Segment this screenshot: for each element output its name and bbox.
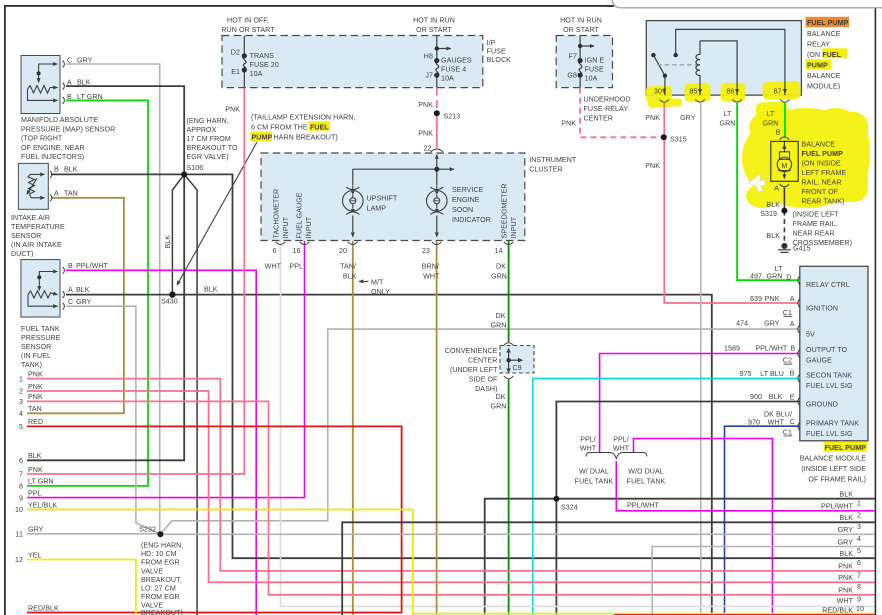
svg-text:S232: S232 — [139, 526, 156, 534]
svg-text:6 CM FROM THE: 6 CM FROM THE — [251, 123, 308, 131]
svg-text:BALANCE MODULE: BALANCE MODULE — [800, 454, 866, 462]
svg-text:D2: D2 — [231, 49, 240, 57]
svg-text:YEL/BLK: YEL/BLK — [28, 501, 57, 509]
svg-text:TEMPERATURE: TEMPERATURE — [11, 223, 65, 231]
svg-text:PRESSURE: PRESSURE — [21, 334, 61, 342]
svg-text:HOT IN RUN: HOT IN RUN — [413, 17, 455, 25]
svg-text:SENSOR: SENSOR — [11, 232, 41, 240]
svg-text:SOON: SOON — [452, 206, 473, 214]
svg-text:A: A — [774, 185, 779, 193]
svg-text:BLK: BLK — [343, 273, 357, 281]
svg-text:RAIL, NEAR: RAIL, NEAR — [802, 179, 842, 187]
svg-text:HARN BREAKOUT): HARN BREAKOUT) — [274, 133, 338, 141]
svg-text:FROM EGR: FROM EGR — [141, 593, 180, 601]
svg-text:B: B — [54, 166, 59, 174]
svg-text:RED: RED — [28, 418, 43, 426]
svg-text:22: 22 — [423, 145, 431, 153]
svg-text:RUN OR START: RUN OR START — [221, 26, 275, 34]
svg-text:LT GRN: LT GRN — [77, 93, 103, 101]
svg-text:PPL/WHT: PPL/WHT — [821, 503, 854, 511]
svg-text:S315: S315 — [670, 136, 687, 144]
svg-text:BALANCE: BALANCE — [807, 72, 841, 80]
svg-text:(INSIDE LEFT SIDE: (INSIDE LEFT SIDE — [801, 465, 866, 473]
svg-text:474: 474 — [736, 320, 748, 328]
svg-text:I/P: I/P — [487, 39, 496, 47]
svg-text:OR START: OR START — [416, 26, 452, 34]
svg-text:GRY: GRY — [77, 57, 93, 65]
svg-text:GROUND: GROUND — [806, 401, 838, 409]
svg-text:3: 3 — [19, 398, 23, 406]
svg-text:CONVENIENCE: CONVENIENCE — [445, 347, 498, 355]
svg-text:W/ DUAL: W/ DUAL — [579, 468, 609, 476]
svg-text:PNK: PNK — [28, 383, 43, 391]
svg-text:BLK: BLK — [164, 235, 172, 249]
svg-text:4: 4 — [857, 535, 861, 543]
svg-text:PNK: PNK — [645, 162, 660, 170]
svg-text:GRY: GRY — [28, 526, 44, 534]
svg-text:RELAY: RELAY — [807, 41, 830, 49]
svg-text:PUMP: PUMP — [252, 133, 273, 141]
svg-text:639: 639 — [750, 295, 762, 303]
svg-text:LT: LT — [767, 110, 775, 118]
svg-text:C1: C1 — [783, 309, 792, 317]
svg-text:PRIMARY TANK: PRIMARY TANK — [806, 420, 859, 428]
svg-text:IGNITION: IGNITION — [806, 305, 838, 313]
svg-text:LT BLU: LT BLU — [760, 370, 784, 378]
svg-text:WHT: WHT — [580, 445, 597, 453]
svg-text:FUSE-RELAY: FUSE-RELAY — [584, 105, 629, 113]
svg-text:PPL/: PPL/ — [613, 435, 629, 443]
svg-text:FUSE 20: FUSE 20 — [250, 61, 279, 69]
svg-text:BLK: BLK — [64, 166, 78, 174]
svg-text:HOT IN RUN: HOT IN RUN — [560, 17, 602, 25]
svg-text:S430: S430 — [161, 298, 178, 306]
svg-text:INDICATOR: INDICATOR — [452, 216, 491, 224]
svg-text:G8: G8 — [567, 72, 577, 80]
svg-text:H8: H8 — [424, 53, 433, 61]
svg-text:A: A — [67, 79, 72, 87]
svg-text:J7: J7 — [425, 72, 433, 80]
svg-text:8: 8 — [857, 583, 861, 591]
svg-text:BALANCE: BALANCE — [807, 30, 841, 38]
svg-text:GRN: GRN — [720, 120, 736, 128]
svg-text:PNK: PNK — [28, 370, 43, 378]
svg-text:TAN: TAN — [28, 405, 42, 413]
svg-text:FRAME RAIL,: FRAME RAIL, — [793, 220, 838, 228]
svg-text:BLK: BLK — [839, 550, 853, 558]
svg-text:6: 6 — [19, 457, 23, 465]
svg-text:SIDE OF: SIDE OF — [469, 376, 498, 384]
svg-text:OR START: OR START — [563, 26, 599, 34]
svg-text:TAN/: TAN/ — [340, 263, 356, 271]
svg-text:FUEL INJECTORS): FUEL INJECTORS) — [21, 153, 84, 161]
svg-text:BALANCE: BALANCE — [802, 141, 836, 149]
svg-text:YEL: YEL — [28, 551, 42, 559]
svg-text:BREAKOUT): BREAKOUT) — [141, 609, 183, 615]
svg-text:DASH): DASH) — [475, 385, 497, 393]
svg-text:8: 8 — [19, 483, 23, 491]
svg-text:PNK: PNK — [28, 466, 43, 474]
svg-text:REAR TANK): REAR TANK) — [802, 198, 845, 206]
svg-text:CLUSTER: CLUSTER — [529, 166, 563, 174]
svg-text:MODULE): MODULE) — [807, 83, 840, 91]
svg-text:(TAILLAMP EXTENSION HARN,: (TAILLAMP EXTENSION HARN, — [251, 114, 356, 122]
svg-text:TANK): TANK) — [21, 361, 42, 369]
svg-text:M/T: M/T — [371, 279, 384, 287]
svg-text:OF ENGINE, NEAR: OF ENGINE, NEAR — [21, 144, 85, 152]
svg-text:LAMP: LAMP — [367, 205, 387, 213]
svg-text:RELAY CTRL: RELAY CTRL — [806, 281, 850, 289]
svg-text:PNK: PNK — [418, 130, 433, 138]
svg-text:23: 23 — [422, 247, 430, 255]
svg-text:PNK: PNK — [838, 563, 853, 571]
svg-text:GRY: GRY — [838, 538, 854, 546]
svg-text:BREAKOUT TO: BREAKOUT TO — [187, 144, 239, 152]
svg-text:GRN: GRN — [767, 272, 783, 280]
svg-text:PPL/WHT: PPL/WHT — [627, 502, 660, 510]
svg-text:B: B — [67, 93, 72, 101]
svg-text:FUEL PUMP: FUEL PUMP — [825, 444, 867, 452]
svg-text:10A: 10A — [250, 70, 263, 78]
svg-text:FUSE: FUSE — [487, 48, 506, 56]
svg-text:D: D — [786, 274, 791, 282]
svg-text:BLK: BLK — [76, 286, 90, 294]
svg-text:(TOP RIGHT: (TOP RIGHT — [21, 135, 63, 143]
svg-text:S213: S213 — [444, 113, 461, 121]
svg-text:86: 86 — [726, 88, 734, 96]
svg-text:PPL: PPL — [28, 489, 42, 497]
svg-text:497: 497 — [750, 272, 762, 280]
svg-text:C: C — [67, 57, 72, 65]
svg-text:DK BLU/: DK BLU/ — [764, 411, 792, 419]
svg-text:C9: C9 — [513, 364, 522, 372]
svg-text:UPSHIFT: UPSHIFT — [367, 195, 398, 203]
svg-text:BLK: BLK — [839, 491, 853, 499]
svg-text:S324: S324 — [561, 504, 578, 512]
svg-text:(ENG HARN,: (ENG HARN, — [187, 117, 229, 125]
svg-text:PNK: PNK — [225, 106, 240, 114]
svg-text:BREAKOUT,: BREAKOUT, — [141, 576, 182, 584]
svg-text:5: 5 — [857, 547, 861, 555]
svg-text:INPUT: INPUT — [305, 216, 313, 238]
svg-text:MANIFOLD ABSOLUTE: MANIFOLD ABSOLUTE — [21, 116, 98, 124]
svg-text:BLK: BLK — [766, 201, 780, 209]
svg-text:PNK: PNK — [838, 587, 853, 595]
svg-text:BLK: BLK — [766, 232, 780, 240]
svg-text:C: C — [68, 298, 73, 306]
svg-text:14: 14 — [494, 247, 502, 255]
svg-text:12: 12 — [15, 556, 23, 564]
svg-text:PRESSURE (MAP) SENSOR: PRESSURE (MAP) SENSOR — [21, 125, 115, 133]
svg-text:DK: DK — [496, 263, 506, 271]
svg-text:5V: 5V — [806, 331, 815, 339]
svg-text:SECON TANK: SECON TANK — [806, 372, 852, 380]
svg-text:FUEL LVL SIG: FUEL LVL SIG — [806, 430, 853, 438]
svg-text:PUMP: PUMP — [807, 62, 828, 70]
svg-text:BLK: BLK — [839, 514, 853, 522]
svg-text:C2: C2 — [783, 357, 792, 365]
svg-text:GRN: GRN — [491, 403, 507, 411]
svg-text:B: B — [776, 129, 781, 137]
svg-text:10: 10 — [15, 506, 23, 514]
svg-text:HOT IN OFF,: HOT IN OFF, — [227, 17, 269, 25]
svg-text:11: 11 — [16, 531, 23, 539]
svg-text:BLOCK: BLOCK — [487, 56, 512, 64]
svg-text:GRN: GRN — [763, 120, 779, 128]
svg-text:FUEL: FUEL — [310, 123, 329, 131]
svg-text:B: B — [790, 344, 795, 352]
svg-text:HD: 10 CM: HD: 10 CM — [141, 550, 177, 558]
svg-text:9: 9 — [857, 596, 861, 604]
svg-text:CENTER: CENTER — [584, 115, 614, 123]
svg-text:C1: C1 — [783, 428, 792, 436]
svg-text:SENSOR: SENSOR — [21, 343, 51, 351]
svg-text:PNK: PNK — [838, 574, 853, 582]
svg-text:5: 5 — [19, 423, 23, 431]
svg-text:FUEL LVL SIG: FUEL LVL SIG — [806, 382, 853, 390]
svg-text:APPROX: APPROX — [187, 126, 217, 134]
svg-text:S319: S319 — [760, 210, 777, 218]
svg-text:(ENG HARN,: (ENG HARN, — [141, 542, 183, 550]
svg-text:2: 2 — [19, 388, 23, 396]
svg-text:BRN/: BRN/ — [422, 263, 439, 271]
svg-text:GAUGES: GAUGES — [441, 56, 472, 64]
svg-text:IGN E: IGN E — [585, 56, 605, 64]
svg-text:TAN: TAN — [64, 189, 78, 197]
svg-text:TACHOMETER: TACHOMETER — [273, 189, 281, 239]
svg-text:SERVICE: SERVICE — [452, 186, 484, 194]
svg-text:FUEL TANK: FUEL TANK — [627, 478, 666, 486]
svg-text:6: 6 — [857, 559, 861, 567]
svg-text:DK: DK — [496, 312, 506, 320]
svg-text:DK: DK — [496, 393, 506, 401]
svg-text:PPL: PPL — [289, 263, 303, 271]
svg-text:DUCT): DUCT) — [11, 250, 33, 258]
svg-text:PPL/: PPL/ — [580, 435, 596, 443]
svg-text:(ON INSIDE: (ON INSIDE — [802, 160, 841, 168]
svg-text:M: M — [781, 162, 787, 170]
svg-text:6: 6 — [272, 247, 276, 255]
svg-text:10A: 10A — [585, 74, 598, 82]
svg-text:GRY: GRY — [838, 526, 854, 534]
svg-text:3: 3 — [857, 523, 861, 531]
svg-text:B: B — [790, 370, 795, 378]
svg-text:E1: E1 — [231, 68, 240, 76]
svg-text:10A: 10A — [441, 74, 454, 82]
svg-text:INPUT: INPUT — [510, 216, 518, 238]
svg-text:PNK: PNK — [645, 114, 660, 122]
svg-text:OUTPUT TO: OUTPUT TO — [806, 346, 848, 354]
svg-text:CENTER: CENTER — [468, 357, 498, 365]
svg-text:NEAR REAR: NEAR REAR — [793, 230, 835, 238]
svg-text:1589: 1589 — [724, 345, 740, 353]
svg-text:RED/BLK: RED/BLK — [28, 604, 59, 612]
svg-text:A: A — [790, 320, 795, 328]
svg-text:ONLY: ONLY — [371, 288, 390, 296]
svg-text:LT: LT — [724, 110, 732, 118]
svg-text:S106: S106 — [187, 164, 204, 172]
svg-text:A: A — [790, 295, 795, 303]
svg-text:PPL/WHT: PPL/WHT — [755, 345, 788, 353]
svg-text:OF FRAME RAIL): OF FRAME RAIL) — [808, 475, 866, 483]
svg-text:BLK: BLK — [769, 393, 783, 401]
svg-text:RED/BLK: RED/BLK — [822, 606, 853, 614]
svg-text:20: 20 — [339, 247, 347, 255]
svg-text:W/O DUAL: W/O DUAL — [628, 468, 664, 476]
svg-text:WHT: WHT — [837, 597, 854, 605]
svg-text:9: 9 — [19, 494, 23, 502]
svg-text:GRN: GRN — [491, 273, 507, 281]
svg-text:PPL/WHT: PPL/WHT — [76, 262, 109, 270]
svg-text:C: C — [790, 418, 795, 426]
svg-text:GRY: GRY — [764, 320, 780, 328]
svg-text:GAUGE: GAUGE — [806, 357, 832, 365]
svg-text:BLK: BLK — [28, 452, 42, 460]
svg-text:PNK: PNK — [418, 101, 433, 109]
svg-text:1: 1 — [857, 499, 861, 507]
svg-text:900: 900 — [750, 393, 762, 401]
svg-text:VALVE: VALVE — [141, 567, 163, 575]
svg-text:CROSSMEMBER): CROSSMEMBER) — [793, 239, 852, 247]
svg-text:GRY: GRY — [680, 114, 696, 122]
svg-text:30: 30 — [654, 88, 662, 96]
svg-text:FUEL PUMP: FUEL PUMP — [802, 150, 844, 158]
svg-text:A: A — [68, 286, 73, 294]
svg-text:16: 16 — [292, 247, 300, 255]
svg-text:FUEL TANK: FUEL TANK — [21, 325, 60, 333]
svg-text:(IN AIR INTAKE: (IN AIR INTAKE — [11, 241, 62, 249]
svg-text:FUEL GAUGE: FUEL GAUGE — [296, 192, 304, 238]
svg-text:INPUT: INPUT — [282, 216, 290, 238]
svg-text:WHT: WHT — [423, 273, 440, 281]
svg-text:(IN FUEL: (IN FUEL — [21, 352, 51, 360]
svg-text:FROM EGR: FROM EGR — [141, 559, 180, 567]
svg-text:LEFT FRAME: LEFT FRAME — [802, 169, 847, 177]
svg-text:INTAKE AIR: INTAKE AIR — [11, 214, 50, 222]
svg-text:PNK: PNK — [28, 393, 43, 401]
svg-text:TRANS: TRANS — [250, 52, 275, 60]
svg-text:7: 7 — [19, 471, 23, 479]
svg-text:10: 10 — [856, 605, 864, 613]
svg-text:A: A — [54, 189, 59, 197]
svg-text:EGR VALVE): EGR VALVE) — [187, 153, 229, 161]
svg-text:1: 1 — [19, 375, 23, 383]
svg-text:INSTRUMENT: INSTRUMENT — [529, 156, 577, 164]
svg-text:ENGINE: ENGINE — [452, 196, 480, 204]
svg-text:(INSIDE LEFT: (INSIDE LEFT — [793, 211, 840, 219]
svg-text:E: E — [790, 394, 795, 402]
svg-text:17 CM FROM: 17 CM FROM — [187, 135, 231, 143]
svg-text:87: 87 — [773, 88, 781, 96]
svg-text:GRY: GRY — [76, 298, 92, 306]
svg-text:WHT: WHT — [613, 445, 630, 453]
svg-text:BLK: BLK — [204, 286, 218, 294]
svg-text:BLK: BLK — [77, 79, 91, 87]
svg-text:FUEL TANK: FUEL TANK — [575, 478, 614, 486]
svg-text:7: 7 — [857, 572, 861, 580]
svg-text:(UNDER LEFT: (UNDER LEFT — [450, 366, 498, 374]
svg-text:FUEL PUMP: FUEL PUMP — [807, 19, 849, 27]
svg-text:WHT: WHT — [265, 263, 282, 271]
svg-text:WHT: WHT — [768, 418, 785, 426]
svg-text:SPEEDOMETER: SPEEDOMETER — [501, 183, 509, 238]
svg-text:2: 2 — [857, 512, 861, 520]
svg-text:F7: F7 — [569, 53, 577, 61]
svg-text:LT GRN: LT GRN — [28, 478, 54, 486]
svg-text:975: 975 — [739, 370, 751, 378]
svg-text:LO: 27 CM: LO: 27 CM — [141, 585, 176, 593]
svg-text:FUSE 4: FUSE 4 — [441, 66, 466, 74]
svg-text:B: B — [68, 262, 73, 270]
svg-text:PNK: PNK — [765, 295, 780, 303]
svg-text:FUSE: FUSE — [585, 66, 604, 74]
svg-text:GRN: GRN — [491, 322, 507, 330]
svg-text:4: 4 — [19, 410, 23, 418]
svg-text:FRONT OF: FRONT OF — [802, 188, 839, 196]
svg-text:(ON FUEL: (ON FUEL — [807, 51, 842, 59]
svg-text:85: 85 — [689, 88, 697, 96]
svg-text:UNDERHOOD: UNDERHOOD — [584, 96, 631, 104]
svg-text:PNK: PNK — [561, 120, 576, 128]
svg-text:970: 970 — [748, 418, 760, 426]
